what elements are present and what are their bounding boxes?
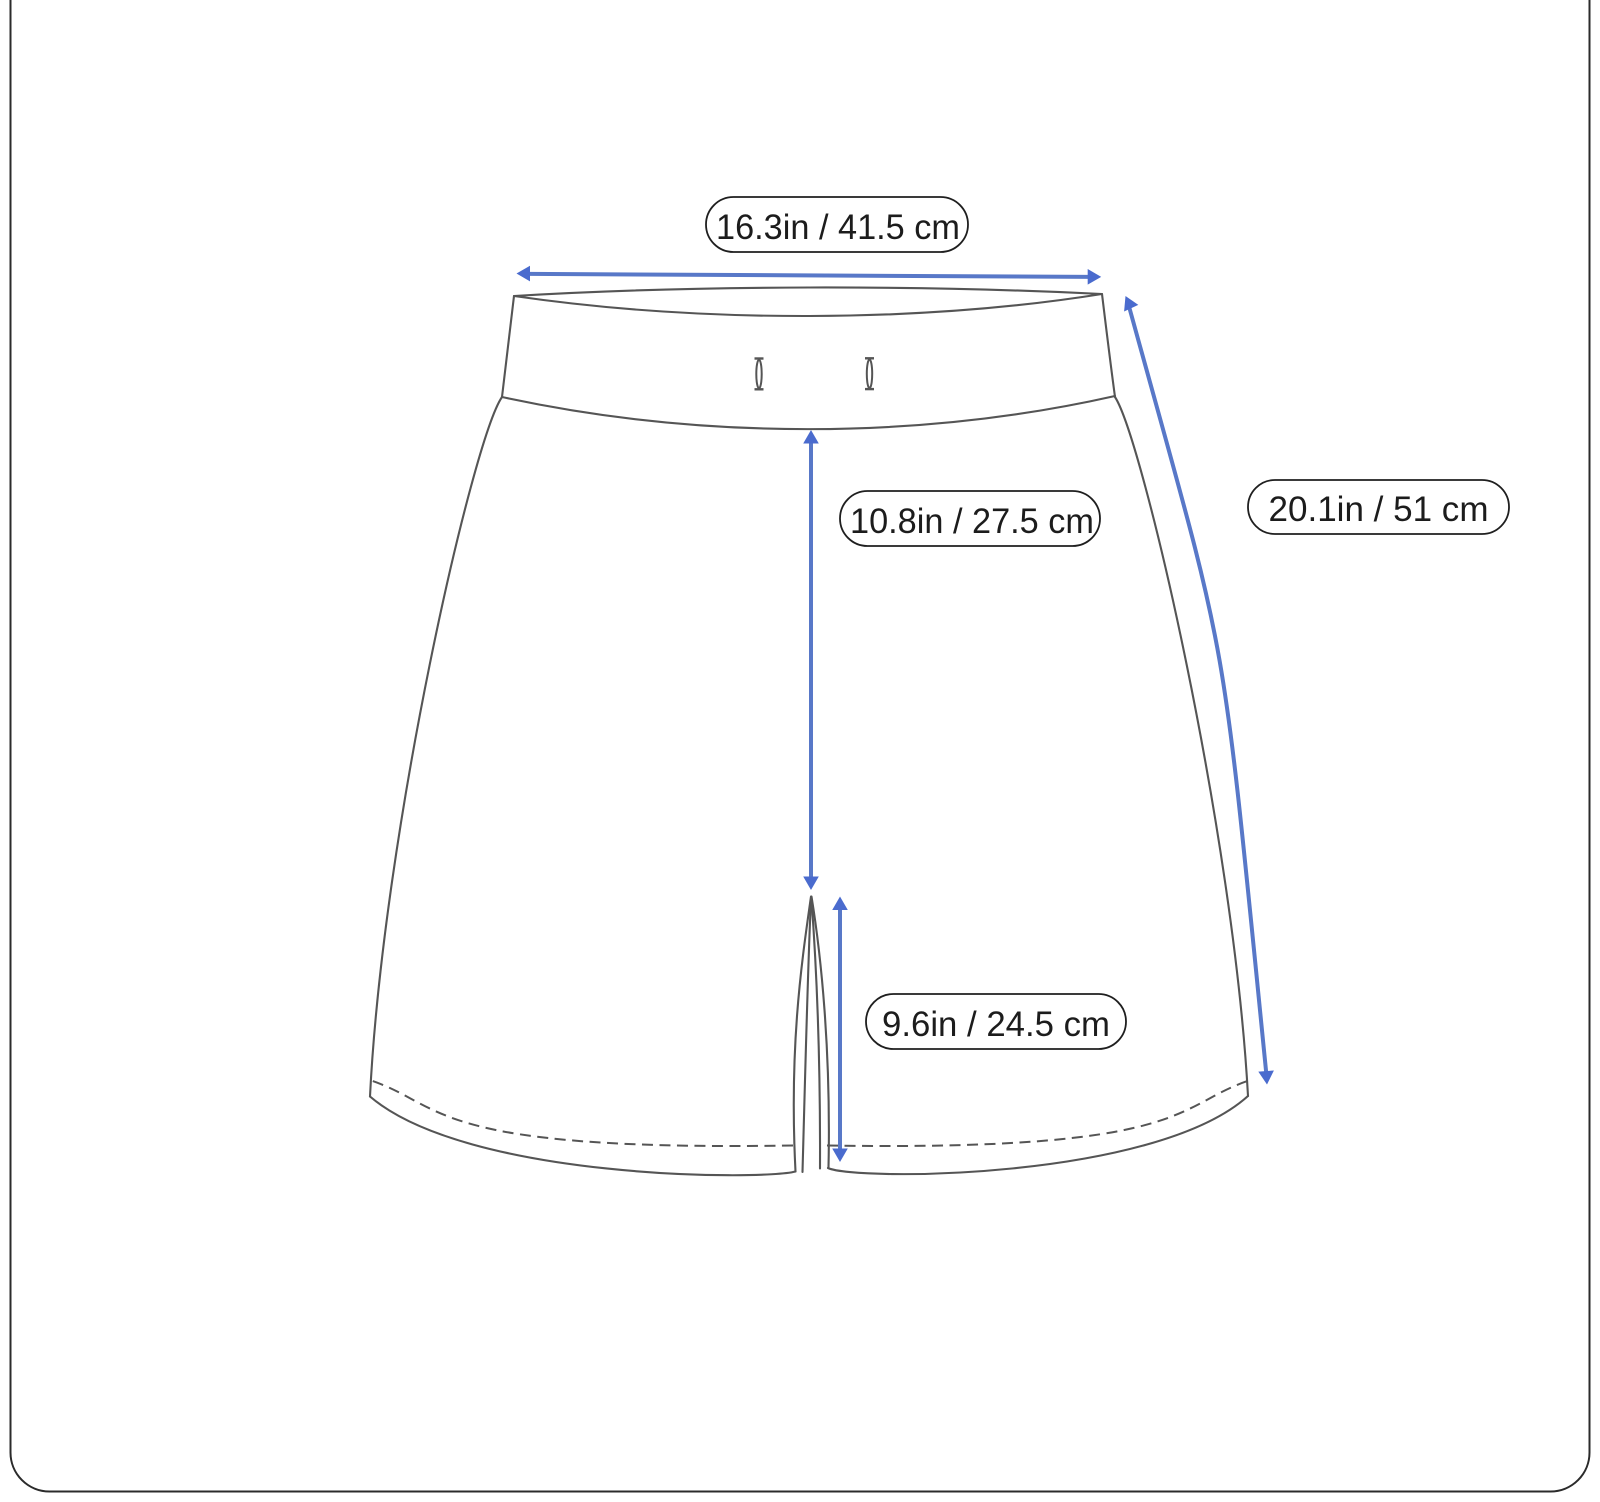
svg-text:9.6in / 24.5 cm: 9.6in / 24.5 cm: [882, 1004, 1110, 1044]
svg-text:16.3in / 41.5 cm: 16.3in / 41.5 cm: [716, 207, 960, 247]
svg-text:10.8in / 27.5 cm: 10.8in / 27.5 cm: [850, 501, 1094, 541]
svg-text:20.1in / 51 cm: 20.1in / 51 cm: [1269, 489, 1489, 529]
